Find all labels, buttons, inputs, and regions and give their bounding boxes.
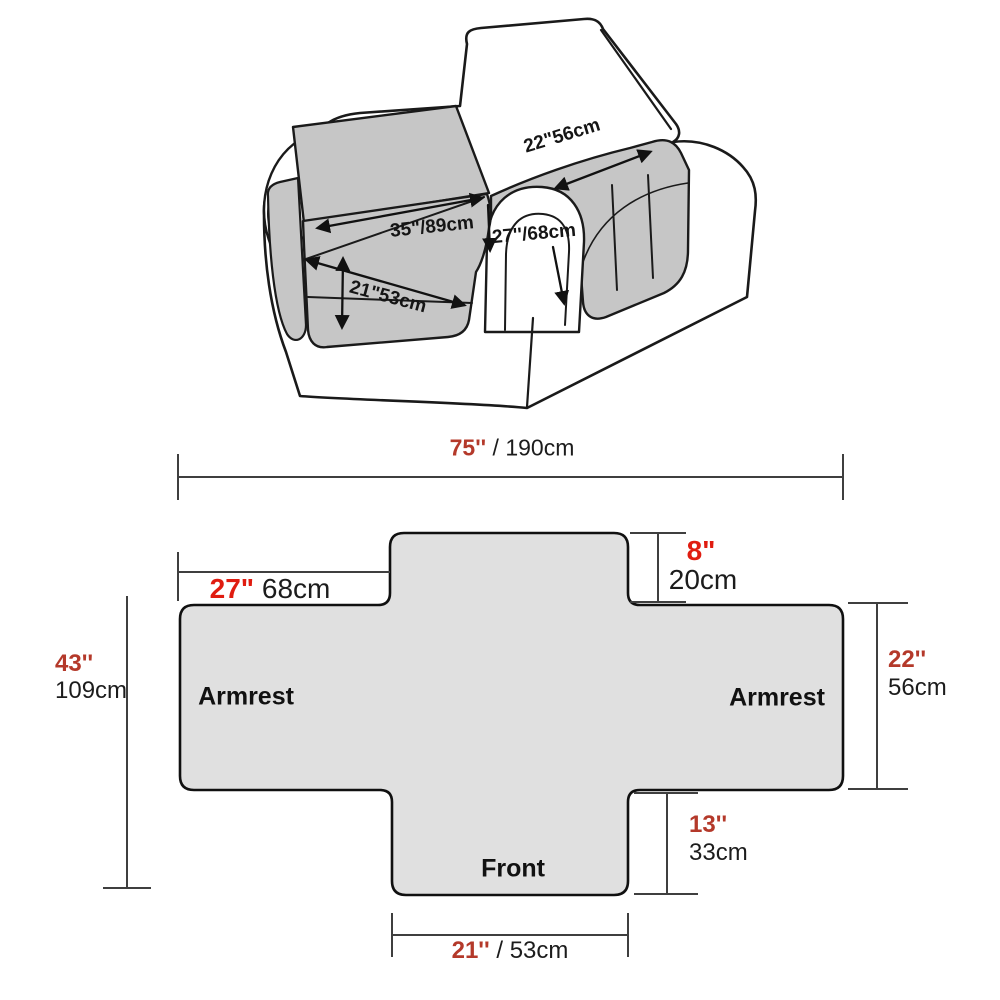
front-width-cm: / 53cm (490, 937, 569, 964)
diagram-graphics (0, 0, 1000, 1000)
right-armrest-text: Armrest (729, 684, 825, 712)
label-armrest-height-inches: 22'' (888, 648, 926, 672)
label-front-flap-cm: 33cm (689, 841, 748, 865)
front-width-inches: 21'' (452, 937, 490, 964)
left-armrest-text: Armrest (198, 683, 294, 711)
total-height-cm-value: 109cm (55, 677, 127, 704)
sofa-cover-dimension-diagram: 22"56cm 35"/89cm 27''/68cm 21"53cm 75'' … (0, 0, 1000, 1000)
label-right-armrest: Armrest (729, 686, 825, 711)
back-flap-cm-value: 20cm (669, 564, 737, 595)
label-front: Front (481, 857, 545, 882)
front-text: Front (481, 855, 545, 883)
label-back-flap-cm: 20cm (669, 566, 737, 594)
label-armrest-height-cm: 56cm (888, 676, 947, 700)
label-front-width: 21'' / 53cm (452, 939, 569, 963)
front-flap-inches-value: 13'' (689, 811, 727, 838)
label-total-height-inches: 43'' (55, 652, 93, 676)
total-width-inches: 75'' (450, 435, 487, 461)
label-armrest-section-width: 27" 68cm (210, 575, 331, 603)
armrest-width-inches: 27" (210, 573, 254, 604)
armchair-illustration (264, 19, 756, 408)
armrest-width-cm: 68cm (254, 573, 330, 604)
label-back-flap-inches: 8" (687, 537, 716, 565)
front-flap-cm-value: 33cm (689, 839, 748, 866)
back-flap-inches-value: 8" (687, 535, 716, 566)
arrow-skirt-height (342, 259, 343, 327)
armrest-height-inches-value: 22'' (888, 646, 926, 673)
label-total-height-cm: 109cm (55, 679, 127, 703)
label-left-armrest: Armrest (198, 685, 294, 710)
total-width-cm: / 190cm (486, 435, 574, 461)
total-height-inches-value: 43'' (55, 650, 93, 677)
armrest-height-cm-value: 56cm (888, 674, 947, 701)
label-total-width: 75'' / 190cm (450, 437, 575, 460)
label-front-flap-inches: 13'' (689, 813, 727, 837)
